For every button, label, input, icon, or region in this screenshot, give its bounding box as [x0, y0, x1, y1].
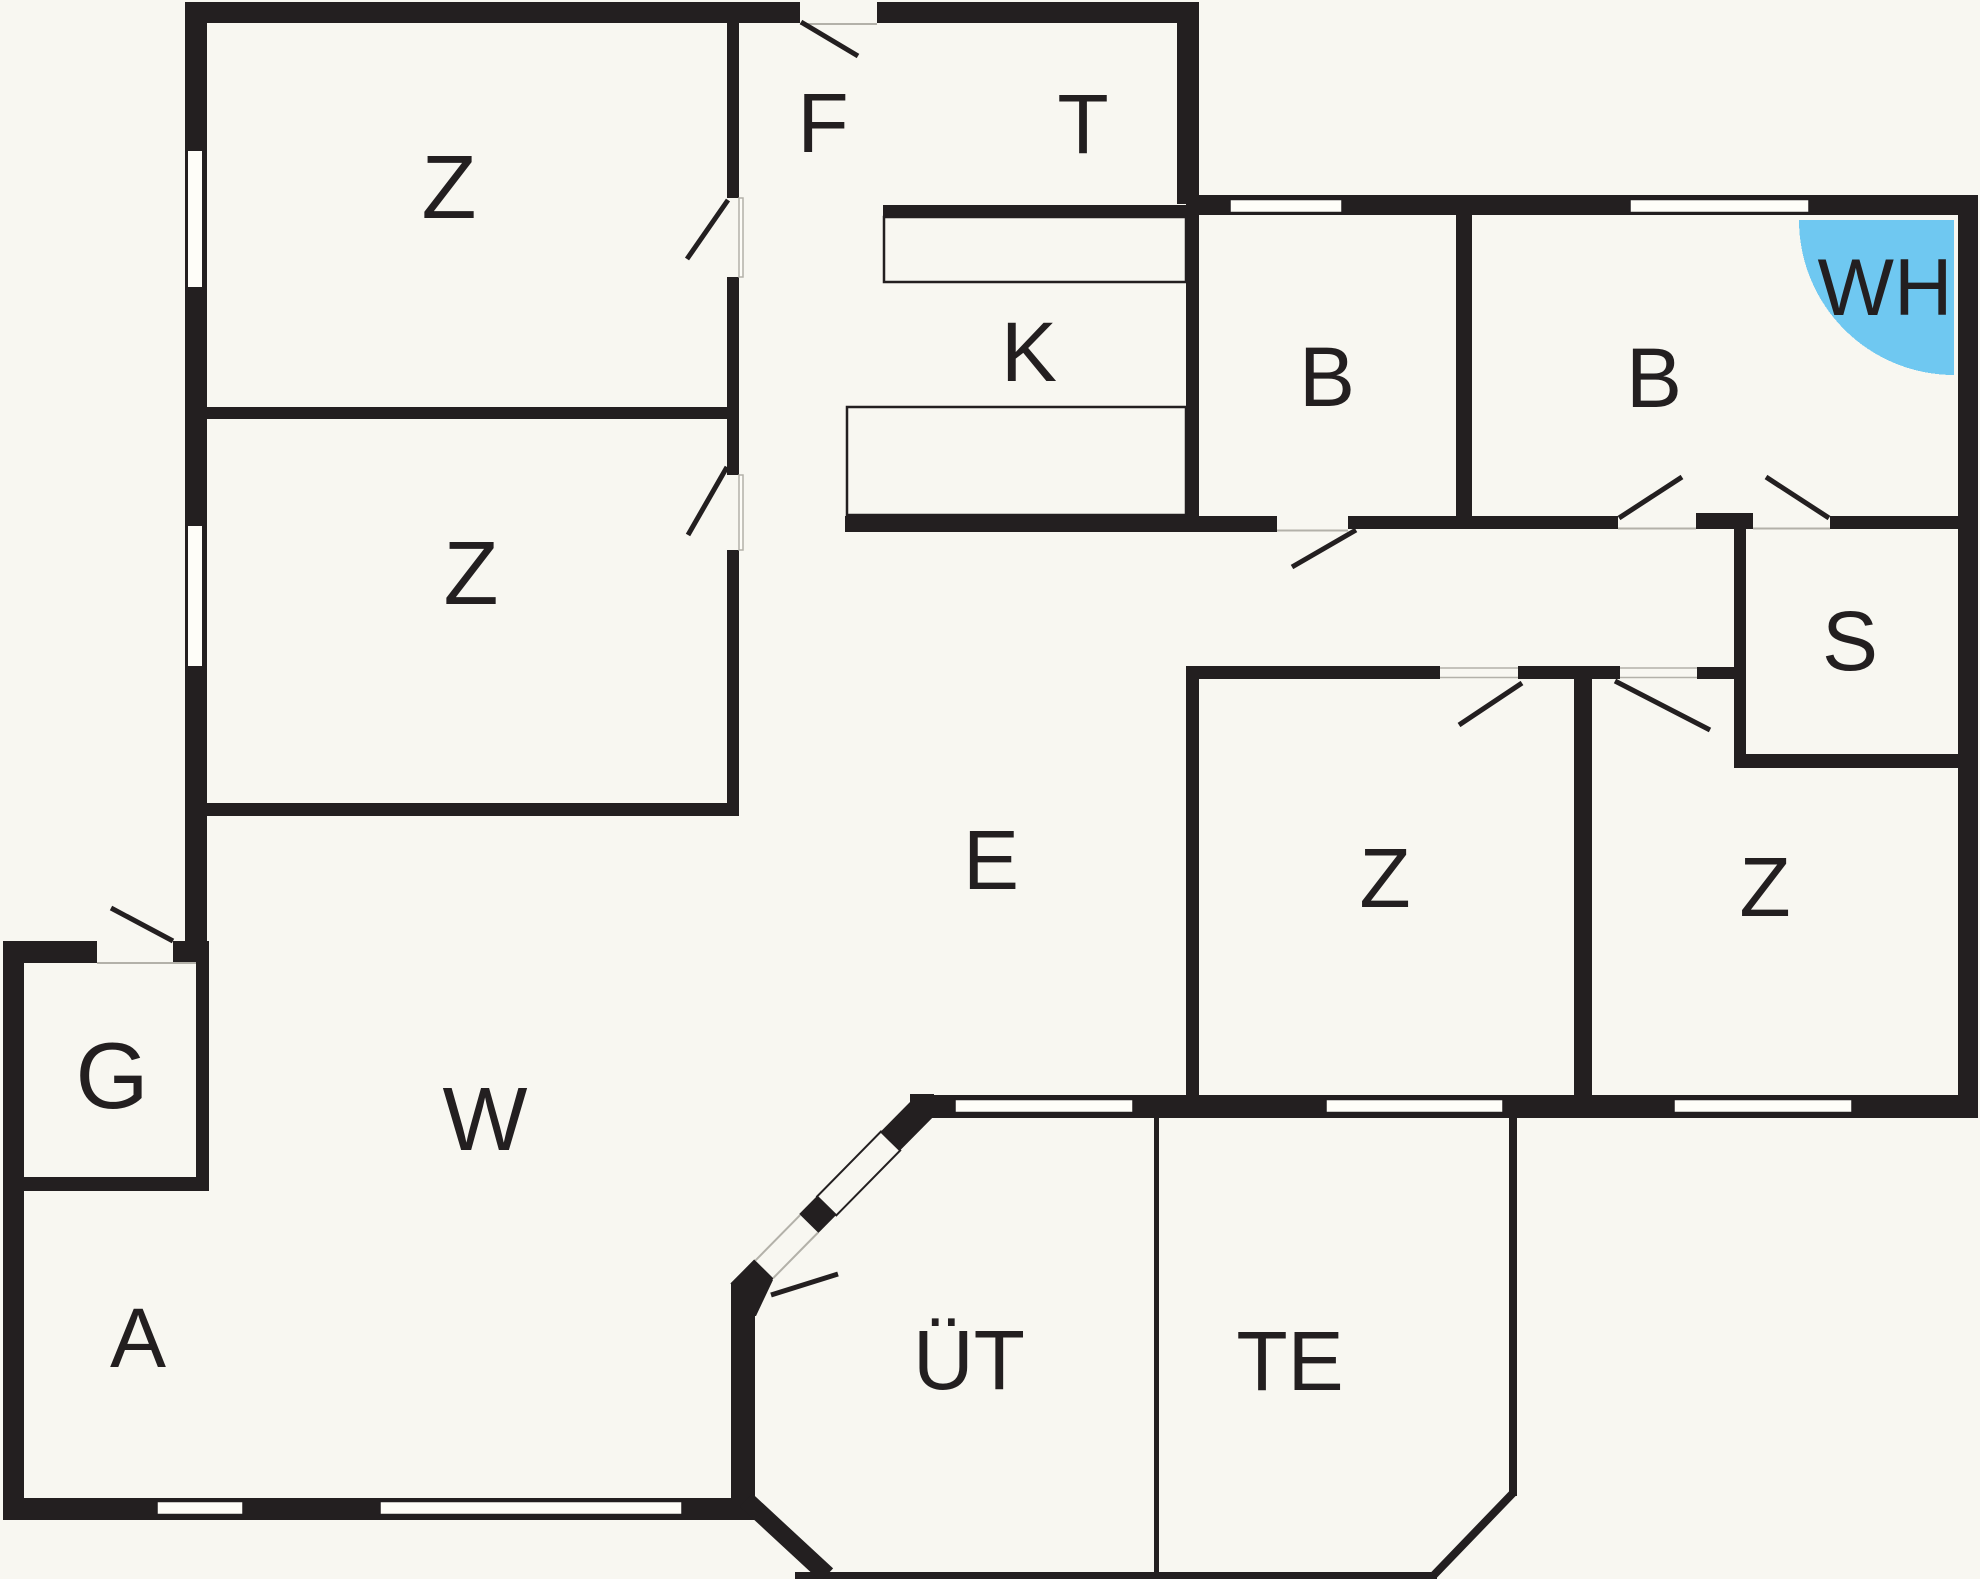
svg-text:A: A — [110, 1291, 166, 1385]
svg-text:W: W — [443, 1070, 528, 1170]
svg-text:Z: Z — [1739, 840, 1790, 934]
svg-text:Z: Z — [444, 524, 499, 624]
svg-text:K: K — [1001, 305, 1057, 399]
svg-text:Z: Z — [422, 138, 477, 238]
svg-text:S: S — [1822, 594, 1878, 688]
svg-text:B: B — [1299, 330, 1355, 424]
svg-text:Z: Z — [1359, 831, 1410, 925]
svg-text:G: G — [75, 1023, 148, 1128]
svg-text:WH: WH — [1818, 243, 1953, 333]
svg-text:T: T — [1057, 77, 1108, 171]
svg-text:ÜT: ÜT — [913, 1313, 1025, 1407]
svg-text:TE: TE — [1236, 1314, 1343, 1408]
svg-text:F: F — [797, 76, 848, 170]
svg-text:E: E — [963, 813, 1019, 907]
svg-text:B: B — [1626, 331, 1682, 425]
